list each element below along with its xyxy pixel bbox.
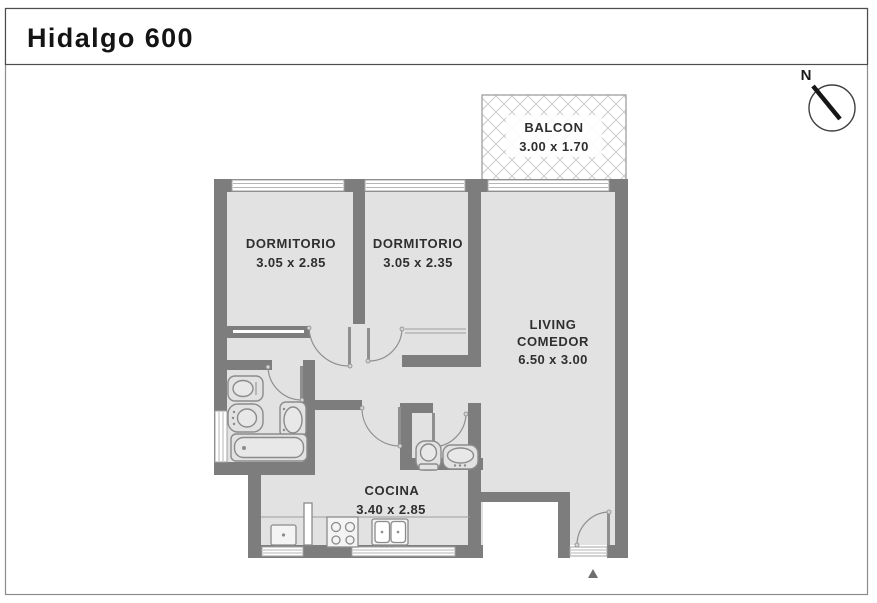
window-bedroom2 (365, 180, 465, 191)
bedroom2-dims: 3.05 x 2.35 (383, 255, 452, 270)
kitchen-dims: 3.40 x 2.85 (356, 502, 425, 517)
kitchen-cabinet (304, 503, 312, 545)
wall-entrance-block (607, 545, 628, 558)
stove-icon (327, 517, 358, 547)
living-name-line1: LIVING (530, 317, 577, 332)
floor-plan-page: Hidalgo 600 N BALCON 3.00 x 1.70 (0, 0, 877, 603)
entrance-threshold (570, 547, 607, 556)
wall-between-bedrooms (353, 192, 365, 324)
kitchen-name: COCINA (365, 483, 420, 498)
bedroom2-name: DORMITORIO (373, 236, 463, 251)
balcony-name: BALCON (524, 120, 583, 135)
window-bedroom1 (232, 180, 344, 191)
wall-entry-step-vertical (558, 502, 570, 558)
washbasin-2-icon (443, 445, 478, 469)
page-title: Hidalgo 600 (27, 23, 194, 53)
wall-toilette-north (400, 403, 433, 413)
bidet-icon (228, 404, 263, 432)
balcony-dims: 3.00 x 1.70 (519, 139, 588, 154)
living-name-line2: COMEDOR (517, 334, 589, 349)
room-balcony: BALCON 3.00 x 1.70 (482, 95, 626, 181)
toilet-icon (228, 376, 263, 401)
window-kitchen-right (352, 547, 455, 556)
wall-entry-step-horizontal (480, 492, 570, 502)
bedroom1-dims: 3.05 x 2.85 (256, 255, 325, 270)
washbasin-icon (280, 402, 306, 437)
wall-kitchen-north (315, 400, 362, 410)
wall-bathroom-north (227, 360, 272, 370)
washer-icon (271, 525, 296, 545)
closet-bedroom1-front (233, 330, 304, 333)
wall-toilette-west (400, 410, 412, 458)
bedroom1-name: DORMITORIO (246, 236, 336, 251)
bathtub-icon (231, 434, 307, 461)
window-bathroom (215, 411, 227, 462)
floor-plan-canvas: Hidalgo 600 N BALCON 3.00 x 1.70 (0, 0, 877, 603)
north-label: N (801, 67, 812, 84)
living-dims: 6.50 x 3.00 (518, 352, 587, 367)
kitchen-sink-icon (372, 519, 408, 548)
toilet-2-icon (416, 441, 441, 470)
wall-living-west-upper (468, 192, 481, 367)
wall-right (615, 179, 628, 558)
wall-bedroom2-south (402, 355, 468, 367)
window-kitchen-left (262, 547, 303, 556)
window-living-balcony (488, 180, 609, 191)
wall-living-west-lower (468, 403, 481, 558)
wall-kitchen-west (248, 469, 261, 558)
toilette-fixtures (416, 441, 478, 470)
